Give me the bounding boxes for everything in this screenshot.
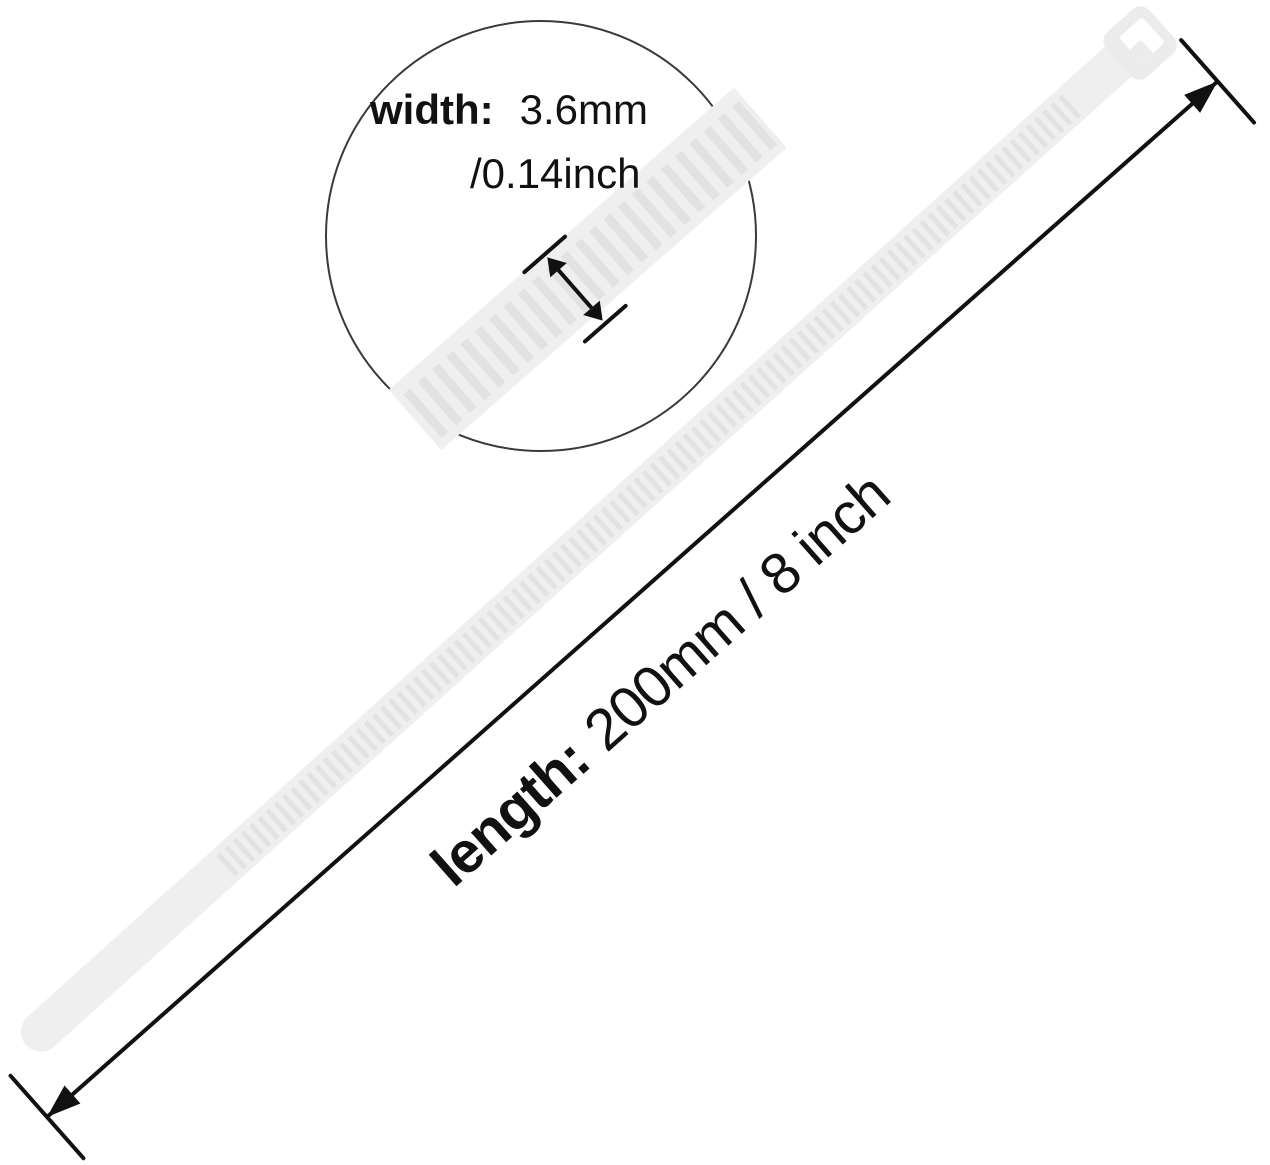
dimension-extension-tick-start xyxy=(8,1073,87,1161)
cable-tie-dimension-diagram: width:3.6mm /0.14inch length:200mm / 8 i… xyxy=(0,0,1270,1165)
width-label-alt: /0.14inch xyxy=(470,150,640,198)
width-label-title: width: xyxy=(370,86,494,133)
length-label-title: length: xyxy=(419,726,602,898)
width-label: width:3.6mm xyxy=(370,86,648,134)
dimension-extension-tick-end xyxy=(1178,37,1257,125)
length-label: length:200mm / 8 inch xyxy=(418,460,902,899)
width-label-value: 3.6mm xyxy=(520,86,648,133)
